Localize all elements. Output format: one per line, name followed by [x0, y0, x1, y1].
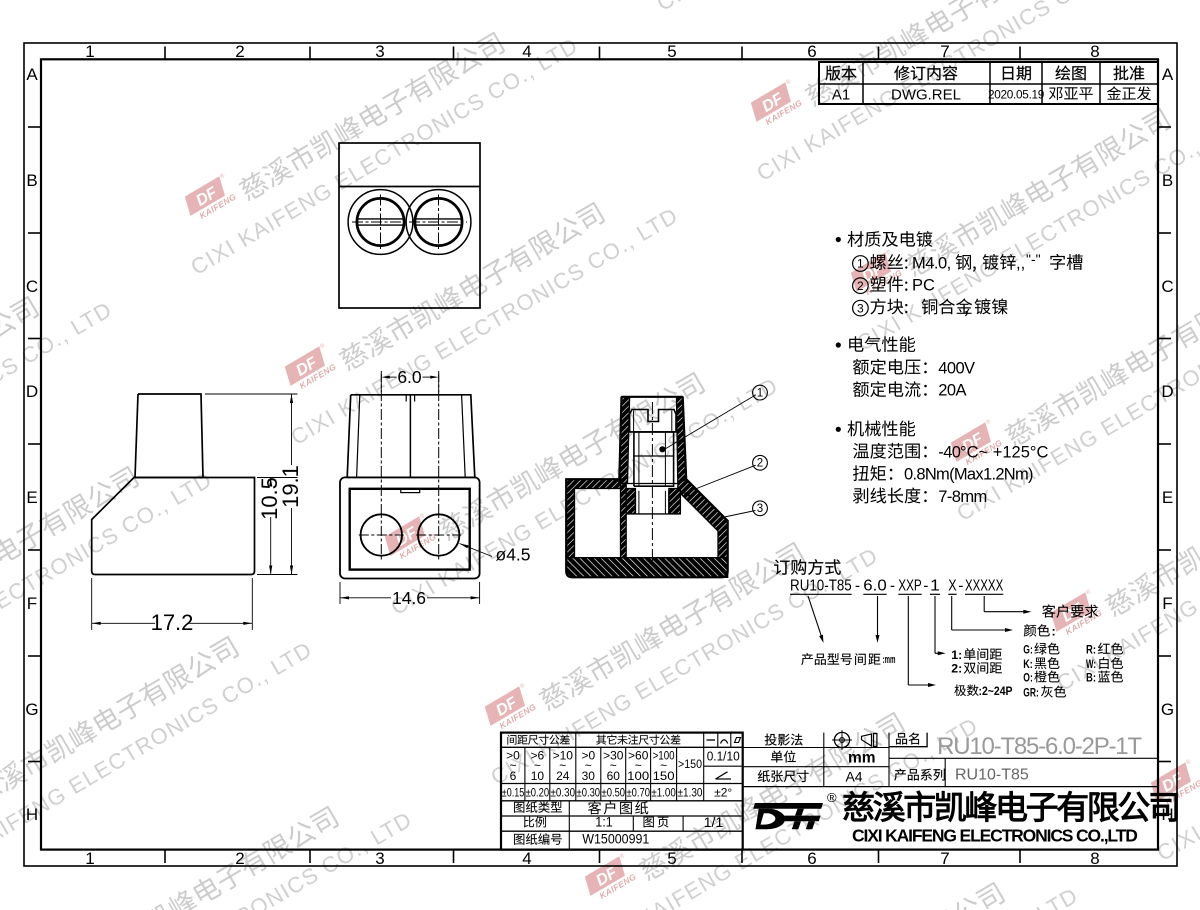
svg-text:1: 1: [930, 578, 940, 595]
svg-text:F: F: [27, 594, 37, 613]
svg-text:5: 5: [667, 42, 676, 61]
svg-text:®: ®: [827, 790, 837, 805]
svg-text:DWG.REL: DWG.REL: [891, 87, 961, 104]
svg-text:-: -: [890, 578, 895, 595]
svg-text:>150: >150: [678, 757, 702, 771]
svg-text:XXXXX: XXXXX: [965, 578, 1004, 595]
svg-text:°C~ +125°C: °C~ +125°C: [960, 443, 1048, 461]
svg-text:-: -: [855, 578, 860, 595]
svg-text:3: 3: [375, 42, 384, 61]
svg-text::mm: :mm: [883, 654, 896, 666]
svg-text:2020.05.19: 2020.05.19: [988, 88, 1044, 102]
svg-text:400V: 400V: [938, 359, 975, 377]
svg-text:M4.0,: M4.0,: [912, 255, 951, 273]
svg-text:RU10-T85: RU10-T85: [790, 578, 852, 595]
svg-text:7-8mm: 7-8mm: [938, 488, 986, 506]
svg-text:E: E: [26, 488, 37, 507]
svg-text:±0.30: ±0.30: [551, 786, 576, 800]
svg-text:10: 10: [531, 769, 545, 783]
svg-text:±0.20: ±0.20: [526, 786, 550, 800]
svg-text:1:: 1:: [951, 648, 962, 662]
svg-text:4: 4: [522, 42, 531, 61]
svg-text:8: 8: [1090, 849, 1099, 868]
svg-text:C: C: [26, 277, 38, 296]
svg-text:6: 6: [807, 849, 816, 868]
svg-text:GR:: GR:: [1023, 686, 1039, 700]
svg-text:G: G: [25, 700, 38, 719]
svg-text:3: 3: [857, 301, 864, 315]
svg-text:±2°: ±2°: [714, 786, 732, 800]
svg-text:E: E: [1162, 488, 1173, 507]
svg-text:1: 1: [857, 257, 864, 271]
svg-text:W:: W:: [1086, 657, 1096, 671]
svg-text:B:: B:: [1086, 671, 1096, 685]
svg-text:G: G: [1161, 700, 1174, 719]
svg-text:6: 6: [807, 42, 816, 61]
svg-text:20A: 20A: [938, 382, 966, 400]
svg-text:RU10-T85-6.0-2P-1T: RU10-T85-6.0-2P-1T: [937, 733, 1142, 760]
svg-text:G:: G:: [1023, 643, 1033, 657]
svg-text:±1.30: ±1.30: [678, 786, 703, 800]
svg-text:A: A: [1162, 65, 1174, 84]
svg-text:B: B: [26, 171, 37, 190]
svg-text:±0.30: ±0.30: [577, 786, 601, 800]
svg-text:X: X: [948, 578, 957, 595]
svg-text:-: -: [923, 578, 928, 595]
svg-text:30: 30: [582, 769, 596, 783]
svg-text:1: 1: [85, 42, 94, 61]
svg-text:W15000991: W15000991: [582, 832, 649, 847]
svg-text:R:: R:: [1086, 643, 1096, 657]
svg-text:CIXI KAIFENG ELECTRONICS CO.,L: CIXI KAIFENG ELECTRONICS CO.,LTD: [852, 826, 1137, 846]
svg-text:14.6: 14.6: [392, 588, 426, 608]
svg-text:24: 24: [556, 769, 570, 783]
svg-text:6: 6: [510, 769, 517, 783]
svg-text:1/1: 1/1: [704, 814, 724, 830]
svg-text:2: 2: [235, 849, 244, 868]
svg-text:-40: -40: [938, 443, 960, 461]
svg-text:±0.70: ±0.70: [626, 786, 650, 800]
svg-text:F: F: [1162, 594, 1172, 613]
svg-text:H: H: [26, 805, 38, 824]
svg-text:100: 100: [627, 769, 649, 783]
svg-text:PC: PC: [912, 277, 935, 295]
svg-text:19.1: 19.1: [278, 465, 303, 508]
svg-text:6.0: 6.0: [397, 367, 422, 387]
svg-text:D: D: [26, 382, 38, 401]
svg-text:±1.00: ±1.00: [651, 786, 676, 800]
svg-text:mm: mm: [848, 750, 876, 767]
svg-text:2: 2: [235, 42, 244, 61]
svg-text::: :: [1052, 625, 1056, 639]
svg-text:8: 8: [1090, 42, 1099, 61]
svg-text:2: 2: [857, 279, 864, 293]
svg-text:±0.50: ±0.50: [602, 786, 626, 800]
svg-text:7: 7: [940, 42, 949, 61]
svg-text:ø4.5: ø4.5: [496, 545, 531, 565]
svg-text:4: 4: [522, 849, 531, 868]
svg-text:XXP: XXP: [898, 578, 921, 595]
svg-text:17.2: 17.2: [151, 610, 194, 635]
svg-text:0.1/10: 0.1/10: [707, 749, 740, 764]
svg-text:150: 150: [653, 769, 675, 783]
svg-text:±0.15: ±0.15: [502, 786, 525, 800]
svg-text:7: 7: [940, 849, 949, 868]
svg-text:0.8Nm(Max1.2Nm): 0.8Nm(Max1.2Nm): [904, 466, 1033, 484]
svg-text:1:1: 1:1: [595, 815, 613, 830]
svg-text:,,: ,,: [1016, 255, 1025, 273]
svg-text:O:: O:: [1023, 671, 1033, 685]
svg-text:3: 3: [757, 503, 763, 515]
svg-text:2:: 2:: [951, 662, 962, 676]
svg-text:3: 3: [375, 849, 384, 868]
svg-text:B: B: [1162, 171, 1173, 190]
svg-text:"-": "-": [1026, 251, 1041, 267]
svg-text:A1: A1: [832, 87, 850, 104]
svg-text:6.0: 6.0: [863, 578, 887, 595]
svg-text:2: 2: [757, 458, 763, 470]
svg-text:1: 1: [757, 388, 763, 400]
svg-text:1: 1: [85, 849, 94, 868]
svg-text:5: 5: [667, 849, 676, 868]
svg-text:A4: A4: [845, 769, 862, 785]
svg-text:C: C: [1161, 277, 1173, 296]
svg-text::2~24P: :2~24P: [979, 684, 1013, 698]
svg-text:A: A: [26, 65, 38, 84]
svg-text:-: -: [958, 578, 963, 595]
svg-text:D: D: [1161, 382, 1173, 401]
svg-text:K:: K:: [1023, 657, 1033, 671]
svg-text:60: 60: [607, 769, 621, 783]
svg-text:RU10-T85: RU10-T85: [955, 767, 1029, 784]
